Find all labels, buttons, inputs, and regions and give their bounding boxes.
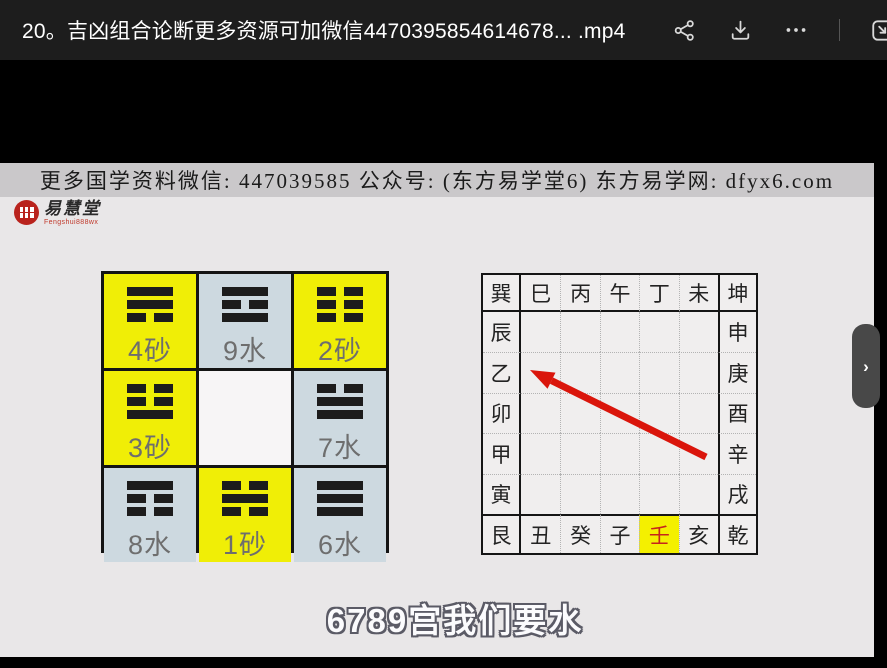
luoshu-cell-center [199, 371, 291, 465]
luoshu-cell-1砂: 1砂 [199, 468, 291, 562]
compass-cell-empty [560, 474, 599, 514]
compass-cell-empty [521, 393, 560, 433]
compass-cell-戌: 戌 [718, 474, 756, 514]
compass-cell-empty [560, 312, 599, 352]
compass-cell-empty [600, 352, 639, 392]
compass-cell-empty [639, 474, 678, 514]
luoshu-cell-3砂: 3砂 [104, 371, 196, 465]
luoshu-grid: 4砂9水2砂3砂7水8水1砂6水 [101, 271, 389, 553]
pop-out-icon[interactable] [870, 17, 887, 43]
logo-name: 易慧堂 [44, 200, 101, 217]
compass-cell-卯: 卯 [483, 393, 521, 433]
compass-cell-empty [679, 352, 718, 392]
video-title: 20。吉凶组合论断更多资源可加微信4470395854614678... .mp… [0, 15, 651, 45]
luoshu-cell-4砂: 4砂 [104, 274, 196, 368]
compass-cell-empty [600, 312, 639, 352]
compass-cell-午: 午 [600, 275, 639, 312]
subtitle-caption: 6789宫我们要水 [327, 594, 583, 642]
compass-cell-empty [560, 352, 599, 392]
video-player-window: 20。吉凶组合论断更多资源可加微信4470395854614678... .mp… [0, 0, 887, 668]
compass-cell-辛: 辛 [718, 433, 756, 473]
compass-cell-empty [639, 433, 678, 473]
trigram-kan-icon [222, 481, 268, 516]
compass-cell-甲: 甲 [483, 433, 521, 473]
compass-cell-辰: 辰 [483, 312, 521, 352]
luoshu-cell-label: 4砂 [128, 329, 172, 368]
compass-cell-亥: 亥 [679, 514, 718, 553]
luoshu-cell-label: 7水 [318, 426, 362, 465]
video-slide: 更多国学资料微信: 447039585 公众号: (东方易学堂6) 东方易学网:… [0, 163, 874, 657]
compass-cell-empty [560, 433, 599, 473]
luoshu-cell-label: 2砂 [318, 329, 362, 368]
compass-cell-empty [679, 474, 718, 514]
luoshu-cell-7水: 7水 [294, 371, 386, 465]
compass-cell-巳: 巳 [521, 275, 560, 312]
compass-cell-癸: 癸 [560, 514, 599, 553]
compass-cell-empty [600, 393, 639, 433]
compass-cell-乙: 乙 [483, 352, 521, 392]
luoshu-cell-2砂: 2砂 [294, 274, 386, 368]
compass-cell-empty [521, 312, 560, 352]
compass-cell-empty [639, 352, 678, 392]
luoshu-cell-label: 6水 [318, 523, 362, 562]
logo-grid-icon [14, 200, 39, 225]
titlebar-divider [839, 19, 840, 41]
trigram-li-icon [222, 287, 268, 322]
compass-cell-empty [521, 474, 560, 514]
compass-cell-艮: 艮 [483, 514, 521, 553]
flyout-handle[interactable]: › [852, 324, 880, 408]
luoshu-cell-9水: 9水 [199, 274, 291, 368]
promo-banner: 更多国学资料微信: 447039585 公众号: (东方易学堂6) 东方易学网:… [0, 163, 874, 197]
compass-cell-丁: 丁 [639, 275, 678, 312]
compass-cell-丑: 丑 [521, 514, 560, 553]
luoshu-cell-label: 3砂 [128, 426, 172, 465]
titlebar: 20。吉凶组合论断更多资源可加微信4470395854614678... .mp… [0, 0, 887, 60]
luoshu-cell-label: 1砂 [223, 523, 267, 562]
compass-cell-丙: 丙 [560, 275, 599, 312]
trigram-qian-icon [317, 481, 363, 516]
compass-cell-巽: 巽 [483, 275, 521, 312]
luoshu-cell-label: 8水 [128, 523, 172, 562]
chevron-right-icon: › [863, 358, 869, 375]
compass-cell-empty [679, 393, 718, 433]
luoshu-cell-8水: 8水 [104, 468, 196, 562]
logo-subtext: Fengshui888wx [44, 219, 101, 226]
brand-logo: 易慧堂 Fengshui888wx [14, 200, 101, 226]
compass-cell-壬: 壬 [639, 514, 678, 553]
titlebar-actions [651, 17, 887, 43]
compass-cell-empty [521, 433, 560, 473]
compass-cell-子: 子 [600, 514, 639, 553]
compass-cell-坤: 坤 [718, 275, 756, 312]
compass-cell-empty [639, 312, 678, 352]
compass-cell-empty [639, 393, 678, 433]
compass-cell-empty [679, 312, 718, 352]
more-icon[interactable] [783, 17, 809, 43]
download-icon[interactable] [727, 17, 753, 43]
compass-cell-empty [521, 352, 560, 392]
compass-cell-酉: 酉 [718, 393, 756, 433]
compass-cell-寅: 寅 [483, 474, 521, 514]
trigram-xun-icon [127, 287, 173, 322]
trigram-gen-icon [127, 481, 173, 516]
share-icon[interactable] [671, 17, 697, 43]
trigram-kun-icon [317, 287, 363, 322]
luoshu-cell-label: 9水 [223, 329, 267, 368]
compass-cell-empty [600, 433, 639, 473]
trigram-zhen-icon [127, 384, 173, 419]
compass-cell-empty [679, 433, 718, 473]
compass-cell-empty [560, 393, 599, 433]
compass-cell-庚: 庚 [718, 352, 756, 392]
trigram-dui-icon [317, 384, 363, 419]
compass-cell-乾: 乾 [718, 514, 756, 553]
compass-cell-申: 申 [718, 312, 756, 352]
compass-cell-empty [600, 474, 639, 514]
compass-cell-未: 未 [679, 275, 718, 312]
compass-grid: 巽巳丙午丁未坤辰申乙庚卯酉甲辛寅戌艮丑癸子壬亥乾 [481, 273, 758, 555]
luoshu-cell-6水: 6水 [294, 468, 386, 562]
